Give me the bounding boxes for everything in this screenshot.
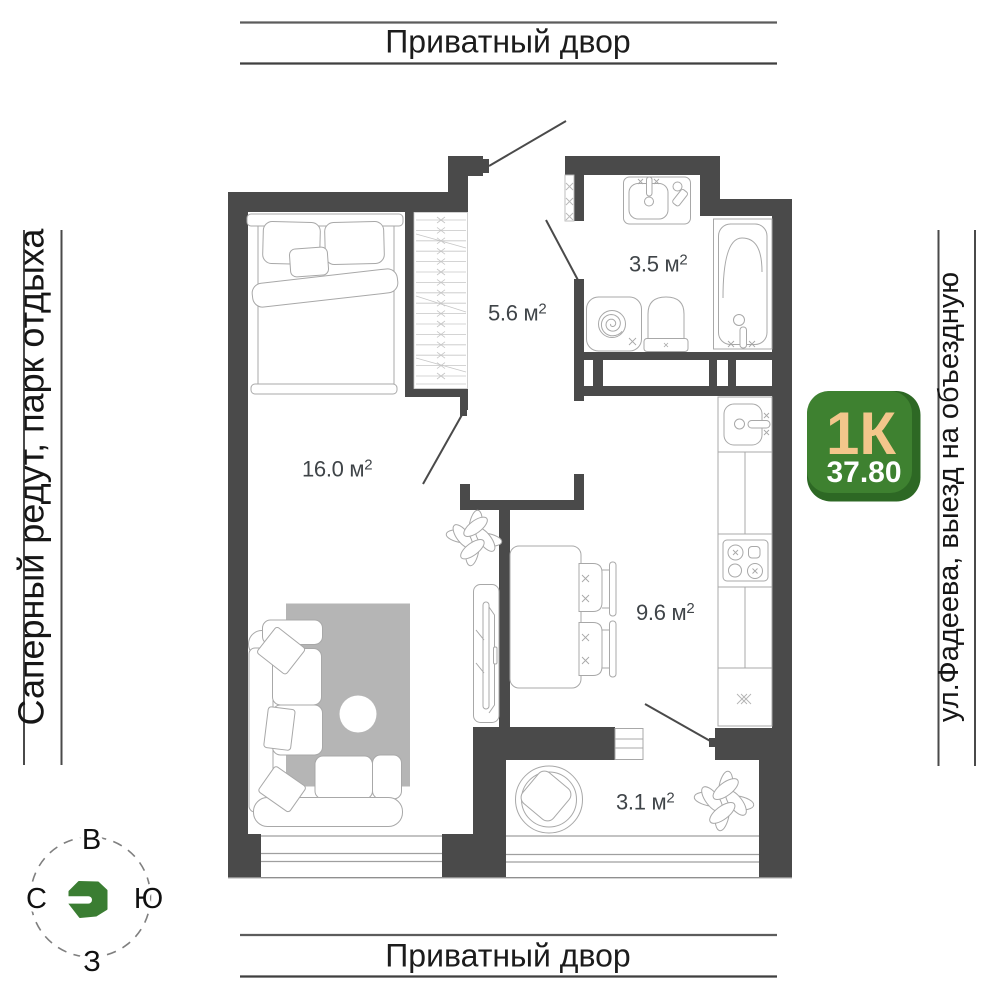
svg-text:37.80: 37.80 bbox=[826, 456, 901, 489]
svg-text:Приватный двор: Приватный двор bbox=[385, 24, 630, 60]
svg-text:Приватный двор: Приватный двор bbox=[385, 938, 630, 974]
svg-text:5.6 м2: 5.6 м2 bbox=[488, 301, 546, 326]
svg-text:С: С bbox=[26, 883, 47, 915]
svg-text:Ю: Ю bbox=[134, 883, 163, 915]
svg-text:3.5 м2: 3.5 м2 bbox=[629, 252, 687, 277]
svg-text:В: В bbox=[82, 824, 101, 856]
svg-text:3.1 м2: 3.1 м2 bbox=[616, 790, 674, 815]
svg-text:16.0 м2: 16.0 м2 bbox=[302, 457, 372, 482]
svg-text:9.6 м2: 9.6 м2 bbox=[636, 600, 694, 625]
svg-text:Саперный редут, парк отдыха: Саперный редут, парк отдыха bbox=[11, 228, 52, 726]
svg-text:ул.Фадеева, выезд на объездную: ул.Фадеева, выезд на объездную bbox=[933, 272, 965, 722]
svg-text:З: З bbox=[83, 946, 101, 978]
